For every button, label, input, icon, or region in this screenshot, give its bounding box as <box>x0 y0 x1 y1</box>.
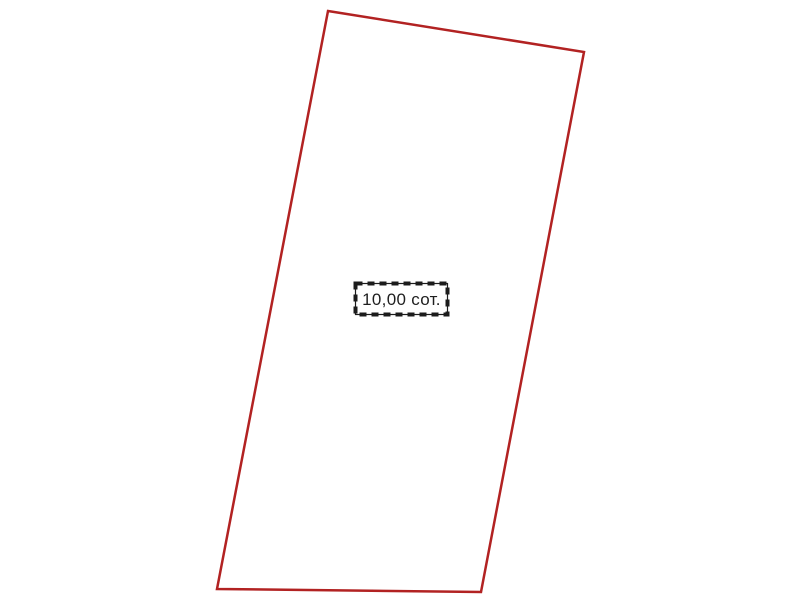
cadastral-map-canvas: 10,00 сот. <box>0 0 800 600</box>
area-label-box[interactable]: 10,00 сот. <box>356 284 448 315</box>
parcel-area-label: 10,00 сот. <box>362 290 441 309</box>
parcel-map: 10,00 сот. <box>0 0 800 600</box>
